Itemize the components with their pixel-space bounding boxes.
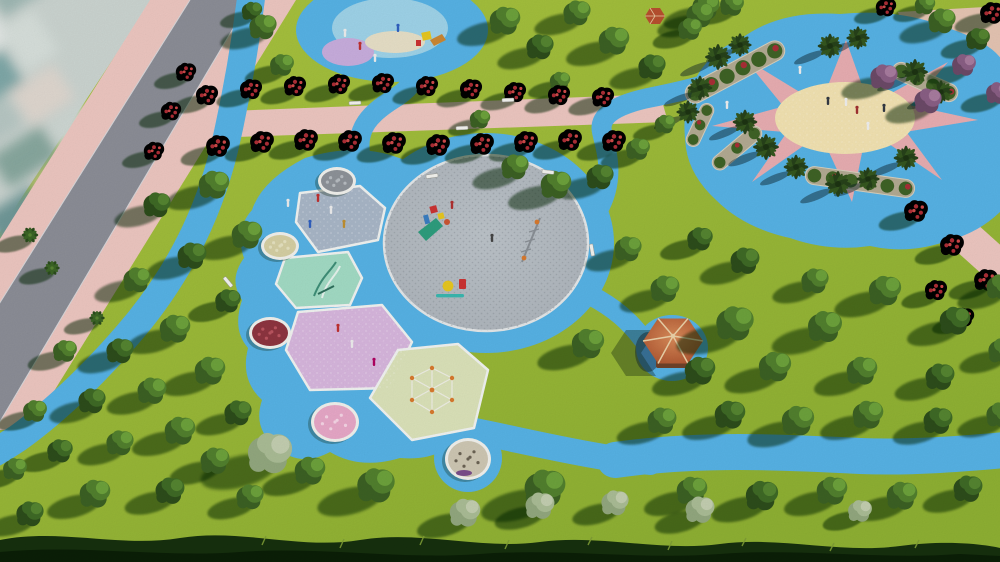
park-render-svg: Aerial 3D render of a park masterplan wi… xyxy=(0,0,1000,562)
grain-overlay xyxy=(0,0,1000,562)
park-aerial-render: Aerial 3D render of a park masterplan wi… xyxy=(0,0,1000,562)
